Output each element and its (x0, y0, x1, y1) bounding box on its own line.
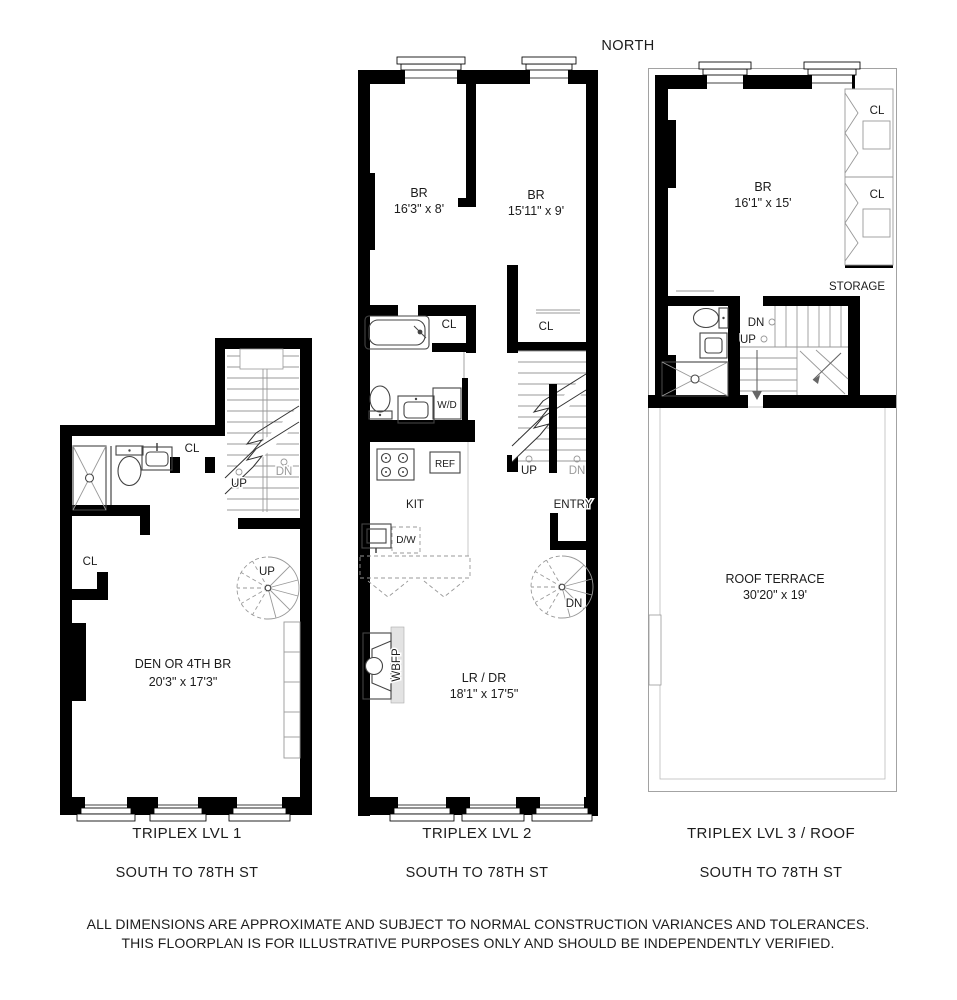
plan2-bathroom: W/D CL (365, 316, 464, 423)
plan1-title: TRIPLEX LVL 1 (132, 825, 241, 842)
toilet-icon (694, 308, 729, 328)
plan2-walls (358, 70, 598, 816)
plan2-street: SOUTH TO 78TH ST (406, 865, 549, 881)
plan2-spiral-dn-label: DN (566, 598, 583, 610)
plan2-wd-label: W/D (437, 400, 456, 411)
plan1-spiral-stair: UP (237, 557, 299, 619)
plan2-entry-label: ENTRY (554, 499, 593, 511)
plan3-closets: CL CL (845, 89, 893, 265)
disclaimer-line1: ALL DIMENSIONS ARE APPROXIMATE AND SUBJE… (87, 916, 870, 932)
plan2-stair-up-label: UP (521, 465, 537, 477)
plan2-br1-name: BR (410, 186, 427, 200)
plan2-spiral-stair: DN (531, 556, 593, 618)
toilet-icon (116, 446, 143, 486)
plan-lvl3: CL CL (648, 62, 897, 881)
plan2-ref-label: REF (435, 459, 455, 470)
north-label: NORTH (601, 38, 654, 54)
floorplan-page: NORTH (0, 0, 957, 1000)
plan3-staircase: DN UP (740, 306, 848, 400)
plan1-windows (77, 797, 290, 821)
bathtub-icon (365, 316, 429, 349)
plan1-stair-up-label: UP (231, 478, 247, 490)
plan3-stair-dn-label: DN (748, 317, 765, 329)
plan1-den-name: DEN OR 4TH BR (135, 657, 232, 671)
plan2-br2-dims: 15'11" x 9' (508, 204, 564, 218)
plan2-br1-dims: 16'3" x 8' (394, 202, 444, 216)
plan3-terrace-name: ROOF TERRACE (725, 572, 824, 586)
plan3-street: SOUTH TO 78TH ST (700, 865, 843, 881)
plan2-windows-bottom (390, 797, 592, 821)
plan2-stair-dn-label: DN (569, 465, 586, 477)
plan3-br-dims: 16'1" x 15' (734, 196, 791, 210)
plan2-title: TRIPLEX LVL 2 (422, 825, 531, 842)
disclaimer-line2: THIS FLOORPLAN IS FOR ILLUSTRATIVE PURPO… (122, 935, 835, 951)
plan1-street: SOUTH TO 78TH ST (116, 865, 259, 881)
plan2-closet-entry-label: CL (539, 321, 554, 333)
plan-lvl2: W/D CL CL UP DN (358, 57, 598, 881)
plan2-kit-label: KIT (406, 499, 424, 511)
sink-icon (142, 443, 172, 470)
plan3-storage-label: STORAGE (829, 281, 885, 293)
plan3-title: TRIPLEX LVL 3 / ROOF (687, 825, 855, 842)
plan1-shelves (284, 622, 300, 758)
plan3-stair-up-label: UP (740, 334, 756, 346)
plan2-br2-name: BR (527, 188, 544, 202)
plan3-terrace-dims: 30'20" x 19' (743, 588, 807, 602)
floorplan-canvas: NORTH (0, 0, 957, 1000)
plan3-closet-top-label: CL (870, 105, 885, 117)
plan3-closet-bottom-label: CL (870, 189, 885, 201)
plan2-dw-label: D/W (396, 535, 416, 546)
stove-icon (377, 449, 414, 480)
plan2-staircase: CL UP DN (512, 310, 586, 477)
plan2-closet-bath-label: CL (442, 319, 457, 331)
plan1-stair-dn-label: DN (276, 466, 293, 478)
plan1-closet-bath-label: CL (185, 443, 200, 455)
plan2-kitchen: REF KIT D/W (360, 442, 470, 597)
counter-outline (360, 556, 470, 578)
sink-icon (398, 396, 434, 423)
plan-lvl1: UP DN (60, 338, 312, 881)
toilet-icon (369, 386, 392, 419)
terrace-planter (649, 615, 661, 685)
plan1-staircase: UP DN (225, 349, 299, 512)
plan3-br-name: BR (754, 180, 771, 194)
plan1-den-dims: 20'3" x 17'3" (149, 675, 218, 689)
plan1-bathroom (73, 443, 172, 510)
plan1-spiral-up-label: UP (259, 566, 275, 578)
plan1-closet-hall-label: CL (83, 556, 98, 568)
sink-icon (700, 333, 727, 358)
plan2-wbfp-label: WBFP (391, 648, 403, 682)
plan2-lrdr-dims: 18'1" x 17'5" (450, 687, 519, 701)
plan2-lrdr-name: LR / DR (462, 671, 506, 685)
